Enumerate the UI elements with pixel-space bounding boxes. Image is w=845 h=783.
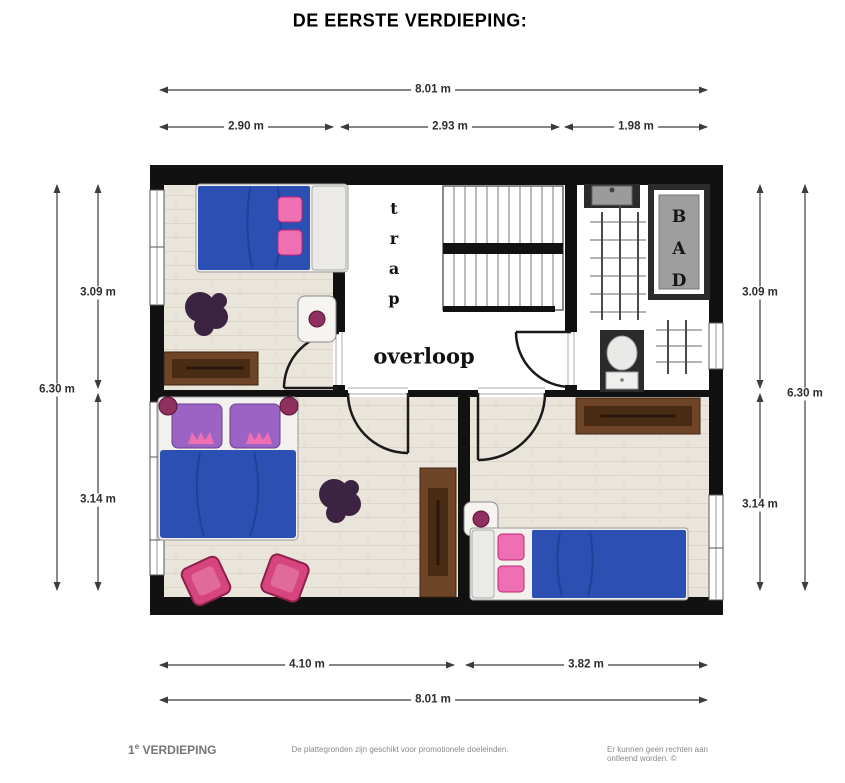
stair-landing-divider	[443, 243, 563, 254]
landing-label: overloop	[373, 344, 474, 369]
bed2-blanket	[532, 530, 686, 598]
footer-center-note: De plattegronden zijn geschikt voor prom…	[291, 745, 508, 754]
single-bed-1	[196, 184, 348, 272]
dim-label-top-total: 8.01 m	[411, 84, 455, 97]
dim-label-bottom-seg2: 3.82 m	[564, 659, 608, 672]
bed1-pillow-1	[278, 197, 302, 222]
decor-knob	[159, 397, 177, 415]
pillow-crown-2	[246, 432, 272, 444]
dim-label-right-total: 6.30 m	[783, 388, 827, 401]
nightstand-1	[298, 296, 336, 342]
double-bed	[158, 397, 298, 540]
bed2-pillow-2	[498, 566, 524, 592]
footer-right-note: Er kunnen geen rechten aan ontleend word…	[607, 745, 726, 763]
dim-label-left-seg1: 3.09 m	[76, 287, 120, 300]
page-title: DE EERSTE VERDIEPING:	[293, 11, 528, 32]
dim-label-top-seg3: 1.98 m	[614, 121, 658, 134]
dresser-1	[164, 352, 258, 385]
single-bed-2	[470, 528, 688, 600]
doorway-bedroom1	[333, 332, 345, 385]
footer-floor-label: VERDIEPING	[139, 743, 216, 757]
dim-label-right-seg1: 3.09 m	[738, 287, 782, 300]
dim-label-right-seg2: 3.14 m	[738, 499, 782, 512]
toilet	[600, 330, 644, 392]
double-bed-blanket	[160, 450, 296, 538]
dim-label-bottom-total: 8.01 m	[411, 694, 455, 707]
stairs-label: trap	[385, 199, 404, 319]
dim-label-top-seg1: 2.90 m	[224, 121, 268, 134]
decor-knob	[280, 397, 298, 415]
decor-knob	[473, 511, 489, 527]
bed1-pillow-2	[278, 230, 302, 255]
dresser-2	[576, 398, 700, 434]
dim-label-bottom-seg1: 4.10 m	[285, 659, 329, 672]
wardrobe	[420, 468, 456, 597]
window-right-bottom	[709, 495, 723, 600]
decor-knob	[309, 311, 325, 327]
doorway-bedroom2	[348, 385, 408, 397]
dim-label-left-total: 6.30 m	[35, 384, 79, 397]
floorplan-page: DE EERSTE VERDIEPING: 8.01 m 2.90 m 2.93…	[0, 0, 845, 783]
footer-floor-number: 1	[128, 743, 135, 757]
window-left-top	[150, 190, 164, 305]
bed1-headboard	[312, 186, 346, 270]
bed2-pillow-1	[498, 534, 524, 560]
dim-label-left-seg2: 3.14 m	[76, 494, 120, 507]
staircase	[443, 186, 563, 312]
footer-floor-name: 1e VERDIEPING	[128, 742, 217, 757]
bath-label: BAD	[669, 207, 689, 303]
doorway-bedroom3	[478, 385, 545, 397]
doorway-bathroom	[565, 332, 577, 385]
sink	[584, 184, 640, 208]
bed2-headboard	[472, 530, 494, 598]
floorplan-drawing	[0, 0, 845, 783]
pillow-crown-1	[188, 432, 214, 444]
window-right-bath	[709, 323, 723, 369]
dim-label-top-seg2: 2.93 m	[428, 121, 472, 134]
stair-bottom-edge	[443, 306, 555, 312]
